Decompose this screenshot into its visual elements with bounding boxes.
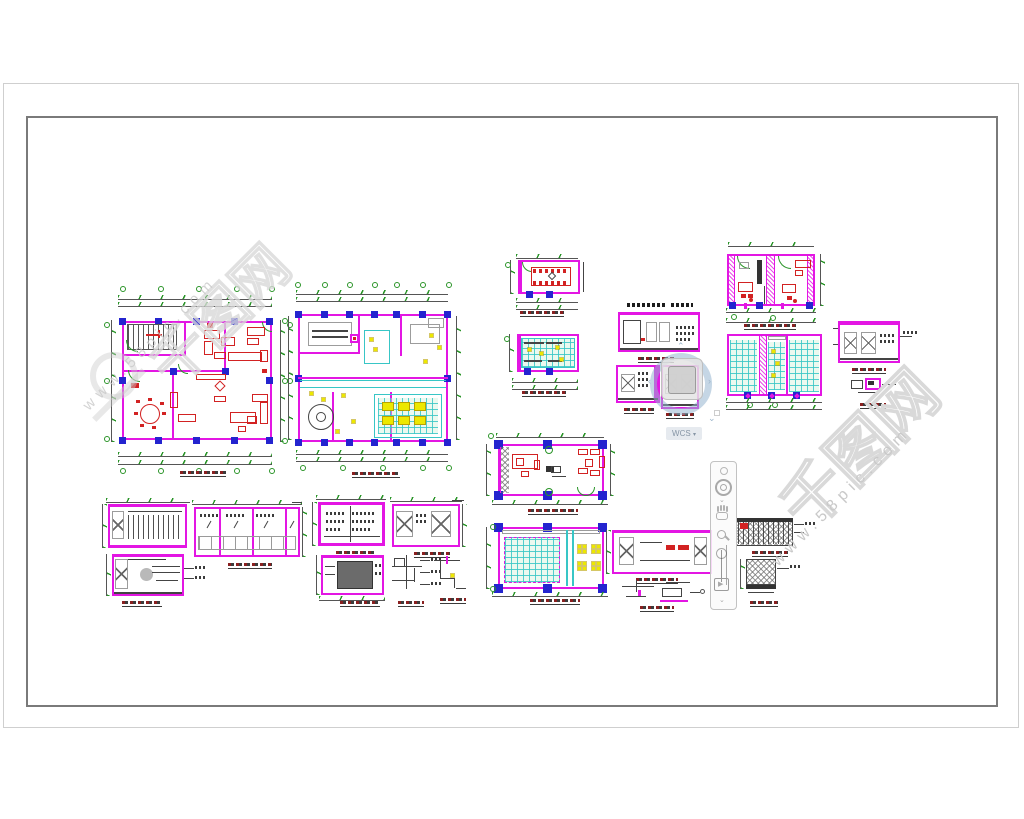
autocad-viewport[interactable]: 千图网 www.58pic.com 千图网 www.58pic.com ⌃ ‹ … bbox=[0, 0, 1024, 819]
show-motion-play-icon: ▶ bbox=[718, 580, 723, 588]
steering-wheel-expand-icon[interactable]: ⌄ bbox=[719, 496, 725, 504]
navbar-handle-dot-icon bbox=[720, 467, 728, 475]
navbar-expand-arrow-icon[interactable]: ⌄ bbox=[719, 596, 725, 604]
navigation-bar-icons: ⌄ ▶ ⌄ bbox=[0, 0, 1024, 819]
